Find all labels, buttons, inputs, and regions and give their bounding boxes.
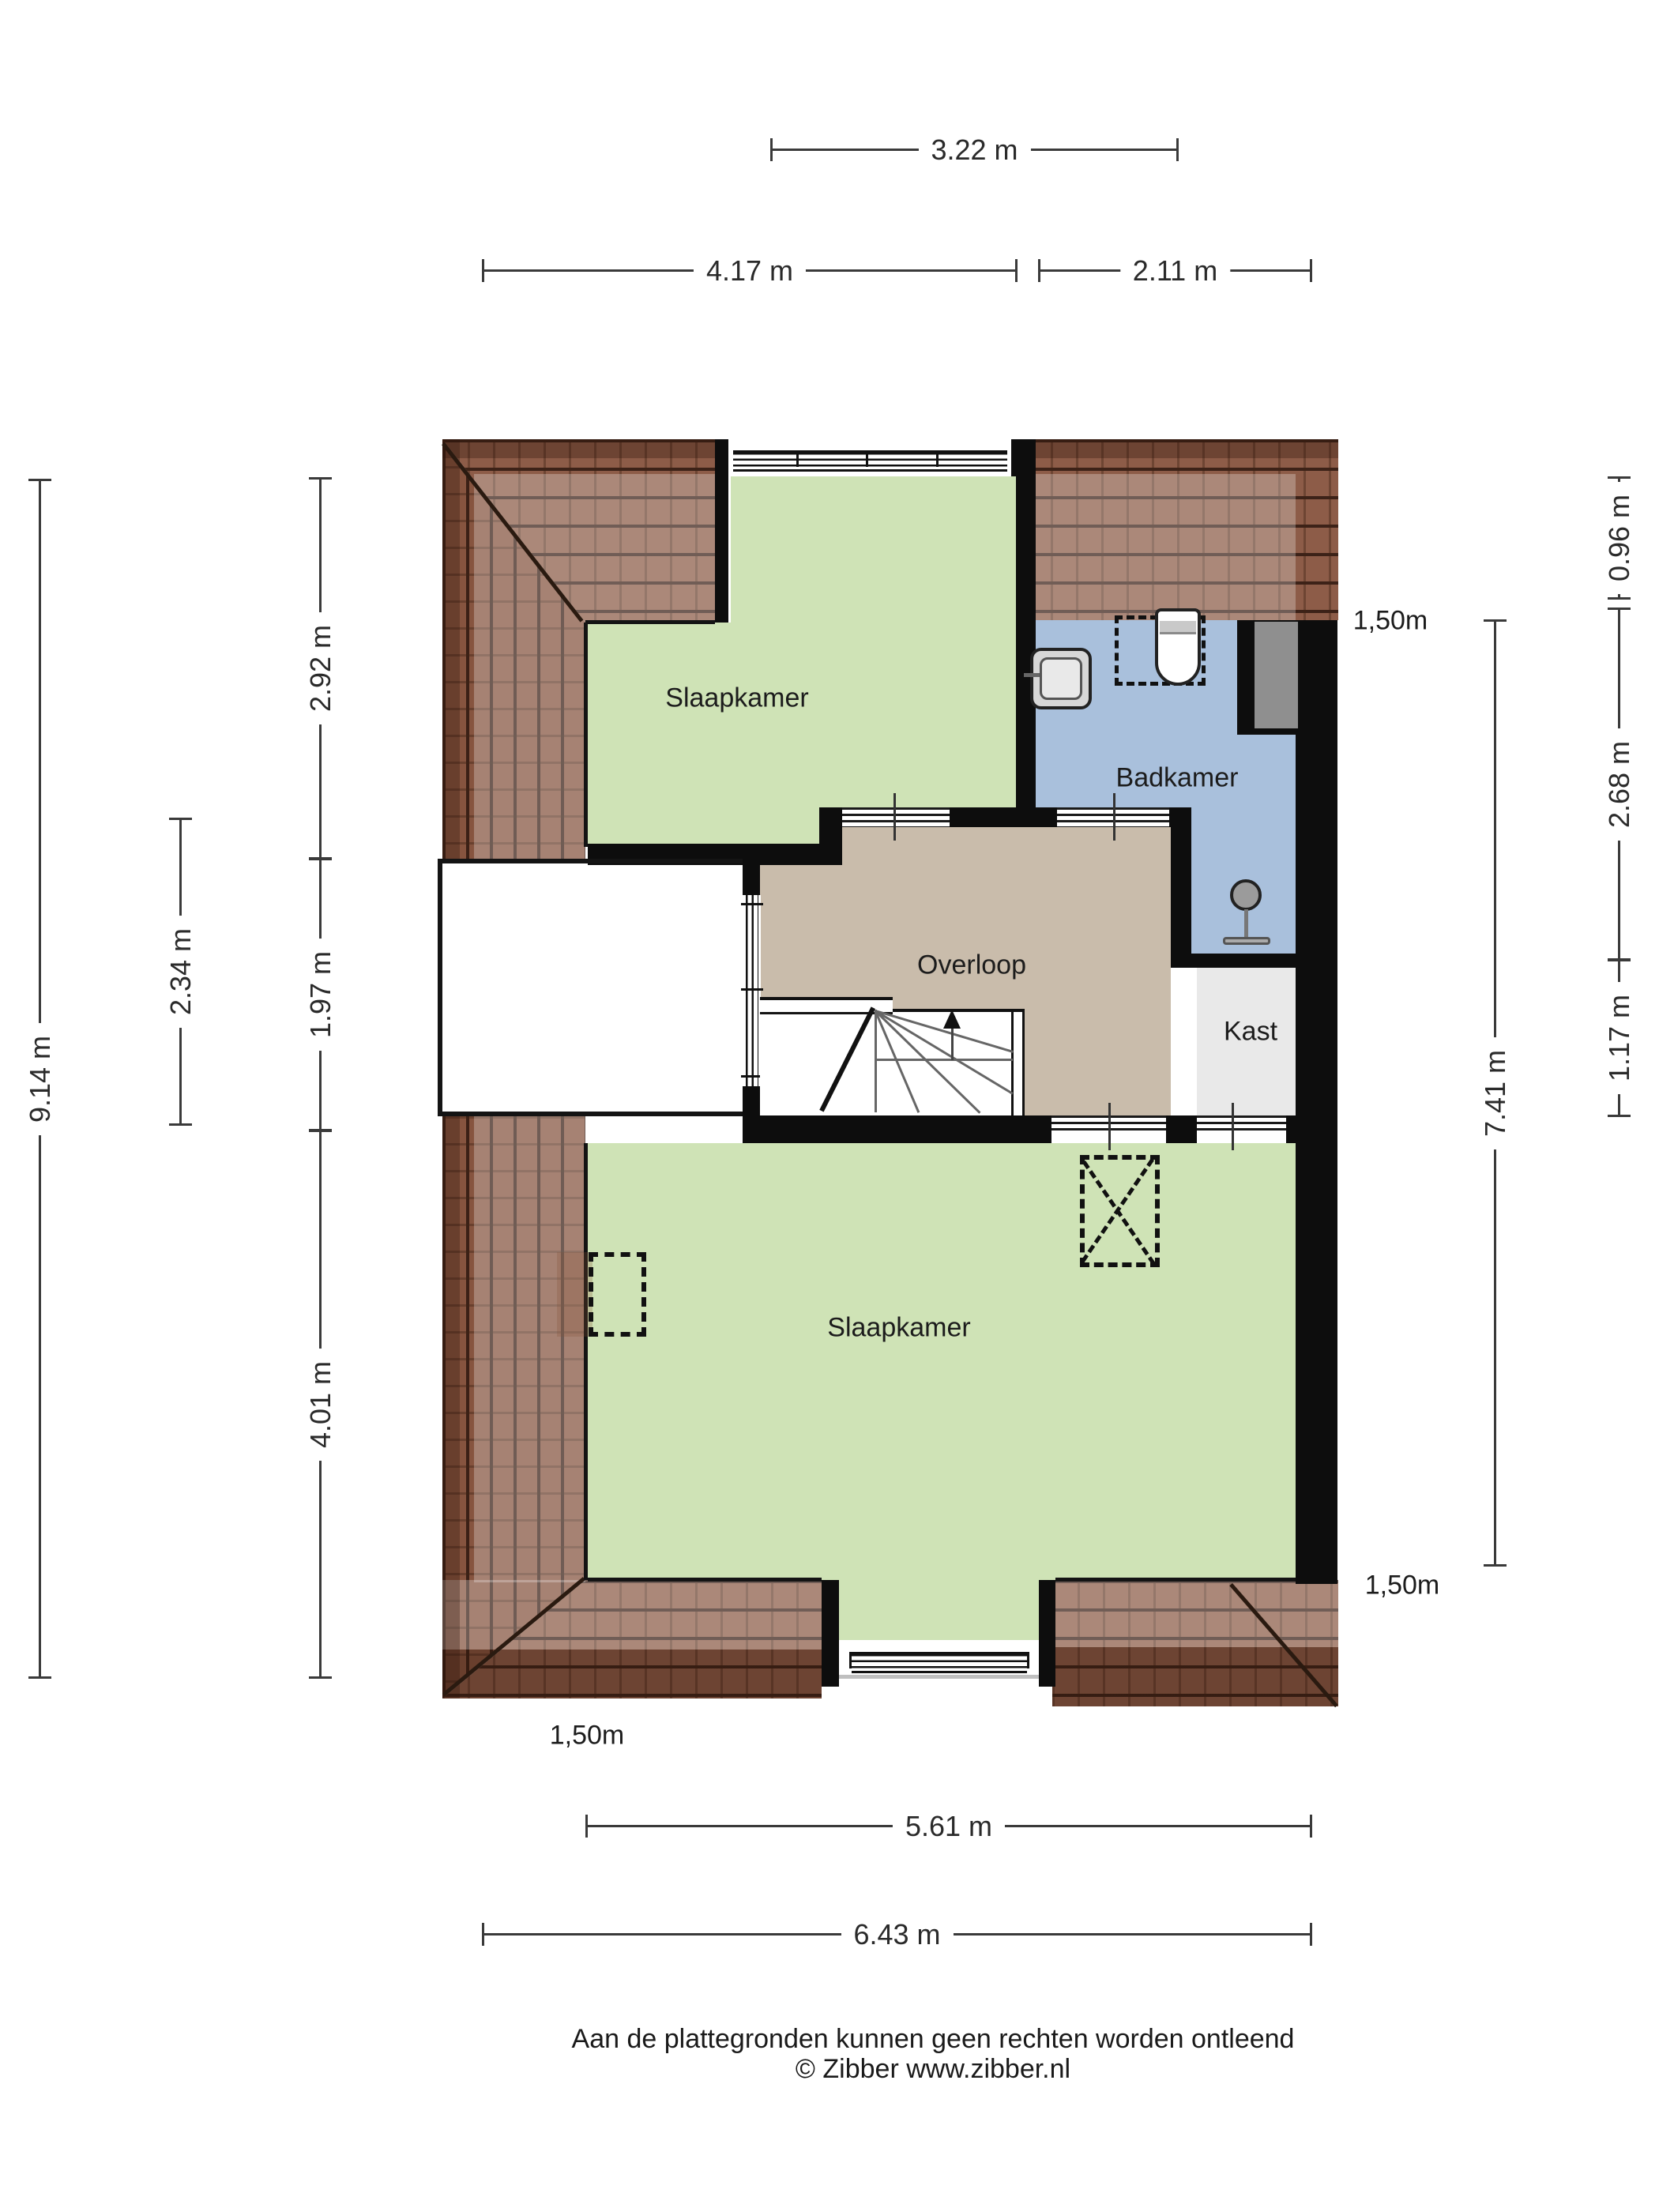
balcony-edge — [438, 1112, 743, 1116]
window-overloop — [743, 895, 761, 1086]
dim-label: 2.92 m — [303, 612, 339, 724]
dim-top-3-22: 3.22 m — [771, 149, 1178, 151]
dim-label: 5.61 m — [893, 1808, 1005, 1845]
dim-label: 2.34 m — [163, 916, 199, 1028]
roof-room-edge — [588, 1578, 822, 1582]
label-kast: Kast — [1224, 1017, 1277, 1048]
floorplan-page: Slaapkamer Badkamer Overloop Kast Slaapk… — [0, 0, 1659, 2212]
sink-tap — [1024, 673, 1040, 677]
room-slaapkamer-top — [731, 476, 1016, 807]
wall — [743, 1086, 760, 1115]
roof-room-edge — [585, 620, 715, 624]
dim-label: 4.01 m — [303, 1348, 339, 1460]
wall — [1169, 807, 1191, 827]
dim-left-1-97: 1.97 m — [319, 859, 322, 1130]
label-overloop: Overloop — [917, 950, 1026, 981]
door-axis — [1232, 1103, 1234, 1150]
dim-left-2-92: 2.92 m — [319, 478, 322, 859]
dim-label: 3.22 m — [918, 132, 1030, 168]
balcony-edge — [438, 859, 743, 863]
toilet — [1155, 608, 1201, 686]
shower-head — [1230, 879, 1262, 911]
shower-stem — [1244, 909, 1248, 941]
clearance-label-bottom-right: 1,50m — [1365, 1571, 1440, 1601]
roof-eave — [442, 439, 460, 863]
dim-right-1-17: 1.17 m — [1618, 960, 1620, 1116]
dim-label: 4.17 m — [694, 253, 806, 289]
dim-right-0-96: 0.96 m — [1618, 477, 1620, 599]
dim-label: 7.41 m — [1477, 1036, 1514, 1149]
sink-basin — [1040, 657, 1082, 700]
wall-right — [1296, 620, 1337, 1584]
dim-top-4-17: 4.17 m — [483, 269, 1017, 272]
stairs-door-strip — [1011, 1009, 1014, 1115]
roof-room-edge — [584, 1143, 588, 1580]
roof-eave — [442, 1116, 460, 1698]
dim-right-7-41: 7.41 m — [1494, 620, 1496, 1566]
duct — [1255, 622, 1298, 728]
wall — [1016, 439, 1036, 827]
stair-tread — [875, 1010, 877, 1112]
window-top — [729, 439, 1011, 476]
toilet-tank — [1160, 621, 1196, 634]
room-slaapkamer-bottom — [588, 1143, 1296, 1580]
wall — [715, 439, 728, 623]
roof-wash — [1052, 1580, 1338, 1647]
roof-wash — [474, 474, 715, 623]
dormer-marker — [589, 1252, 646, 1337]
door-axis — [1113, 793, 1115, 841]
door-axis — [1108, 1103, 1111, 1150]
wall — [743, 1115, 1051, 1143]
shower-valve — [1223, 937, 1270, 945]
dim-left-4-01: 4.01 m — [319, 1130, 322, 1678]
wall — [950, 807, 1057, 827]
window-bottom — [839, 1640, 1039, 1677]
stairs-walk-line — [951, 1027, 954, 1060]
wall — [1286, 1115, 1298, 1143]
room-slaapkamer-top — [588, 623, 731, 847]
label-slaapkamer-bottom: Slaapkamer — [827, 1313, 970, 1344]
roof-room-edge — [584, 623, 588, 847]
wall — [1166, 1115, 1197, 1143]
dormer-shadow — [557, 1252, 592, 1337]
stairs-up-arrow — [943, 1010, 961, 1029]
dim-top-2-11: 2.11 m — [1039, 269, 1311, 272]
dim-label: 2.68 m — [1601, 728, 1638, 840]
wall — [1171, 827, 1191, 968]
dim-label: 6.43 m — [841, 1917, 953, 1953]
dim-left-2-34: 2.34 m — [179, 818, 182, 1125]
dim-right-2-68: 2.68 m — [1618, 608, 1620, 960]
dim-bottom-6-43: 6.43 m — [483, 1933, 1311, 1935]
footer-disclaimer: Aan de plattegronden kunnen geen rechten… — [572, 2024, 1295, 2055]
room-slaapkamer-bottom — [839, 1580, 1039, 1640]
roof-wash — [1035, 474, 1296, 620]
dim-label: 9.14 m — [22, 1022, 58, 1134]
label-slaapkamer-top: Slaapkamer — [665, 683, 808, 714]
label-badkamer: Badkamer — [1116, 763, 1239, 794]
roof-wash — [474, 623, 585, 863]
roof-room-edge — [1055, 1578, 1296, 1582]
clearance-label-bottom-left: 1,50m — [550, 1721, 625, 1751]
dim-label: 1.17 m — [1601, 982, 1638, 1094]
wall — [819, 807, 842, 865]
roof-wash — [442, 1580, 822, 1650]
balcony-edge — [438, 859, 442, 1116]
door-slaapkamer-top — [842, 807, 950, 827]
stair-tread — [875, 1059, 1013, 1061]
roof-ridge-edge — [1025, 439, 1338, 458]
roof-ridge-edge — [442, 439, 715, 458]
dim-left-9-14: 9.14 m — [39, 480, 41, 1678]
roof-eave — [442, 1650, 822, 1698]
dim-label: 2.11 m — [1120, 253, 1230, 289]
wall — [743, 844, 760, 895]
dim-label: 1.97 m — [303, 939, 339, 1051]
wall — [822, 1580, 839, 1687]
stairs-door-strip — [1022, 1009, 1025, 1115]
footer-credit: © Zibber www.zibber.nl — [796, 2054, 1070, 2085]
roof-wash — [474, 1116, 585, 1582]
door-kast — [1197, 1115, 1286, 1140]
building-bottom-edge — [839, 1675, 1039, 1679]
door-axis — [893, 793, 896, 841]
dim-label: 0.96 m — [1601, 482, 1638, 594]
clearance-label-top-right: 1,50m — [1353, 606, 1428, 637]
dim-bottom-5-61: 5.61 m — [586, 1825, 1311, 1827]
wall — [1191, 954, 1298, 968]
wall — [1039, 1580, 1055, 1687]
